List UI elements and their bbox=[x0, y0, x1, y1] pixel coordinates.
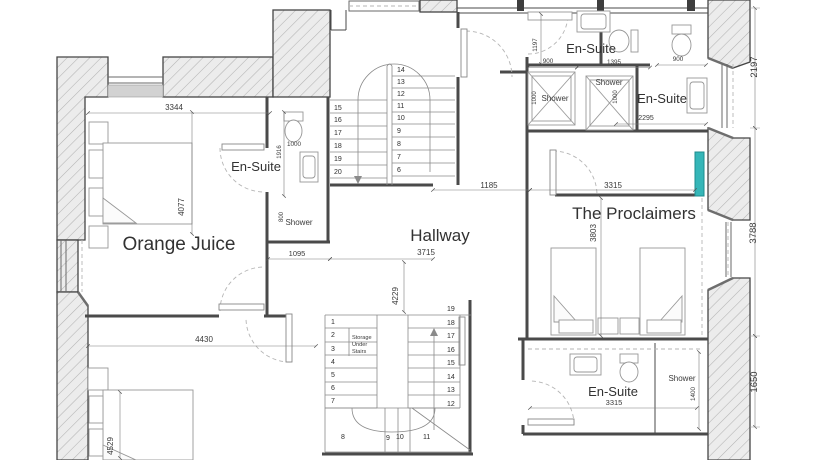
window-sill bbox=[108, 85, 163, 97]
door-leaf bbox=[286, 314, 292, 362]
pillow bbox=[89, 188, 103, 216]
wall-right-low bbox=[708, 278, 750, 460]
room-label-orange-juice: Orange Juice bbox=[122, 234, 235, 255]
bed-double bbox=[103, 390, 193, 460]
dim-2295: 2295 bbox=[638, 115, 654, 122]
dim-3715: 3715 bbox=[417, 248, 435, 257]
stair-number: 17 bbox=[334, 130, 342, 137]
dim-3344: 3344 bbox=[165, 103, 183, 112]
toilet-bowl bbox=[285, 120, 302, 142]
wall-top-center bbox=[163, 57, 273, 97]
stair-number: 7 bbox=[331, 398, 335, 405]
pillow bbox=[89, 396, 103, 423]
dim-900-b: 900 bbox=[673, 56, 684, 63]
stair-number: 16 bbox=[447, 347, 455, 354]
dim-900-a: 900 bbox=[543, 58, 554, 65]
stair-number: 5 bbox=[331, 372, 335, 379]
stairs-upper bbox=[330, 64, 455, 185]
label-storage-line1: Storage bbox=[352, 335, 372, 341]
stair-number: 14 bbox=[447, 374, 455, 381]
dim-1400: 1400 bbox=[690, 387, 697, 402]
bedside-cabinet bbox=[88, 368, 108, 390]
dim-1000-toilet: 1000 bbox=[287, 141, 302, 148]
pillow bbox=[647, 320, 681, 333]
stair-number: 15 bbox=[447, 360, 455, 367]
door-arc-ensuite-bottom bbox=[530, 381, 574, 425]
bedside-cabinet bbox=[89, 122, 108, 144]
toilet-bowl bbox=[620, 362, 638, 382]
wall-left-mid bbox=[57, 240, 78, 292]
pillow bbox=[89, 150, 103, 178]
dim-3803: 3803 bbox=[589, 224, 598, 242]
toilet-cistern bbox=[631, 30, 638, 52]
door-leaf bbox=[528, 419, 574, 425]
label-shower-top-1: Shower bbox=[541, 94, 568, 103]
stair-number: 6 bbox=[331, 385, 335, 392]
stair-arrow bbox=[430, 328, 438, 336]
stair-number: 11 bbox=[423, 434, 430, 441]
dim-4077: 4077 bbox=[177, 198, 186, 216]
stair-number: 19 bbox=[447, 306, 455, 313]
wall-right-mid bbox=[708, 128, 750, 220]
dim-1000-shower1: 1000 bbox=[532, 91, 538, 105]
label-storage-line3: Stairs bbox=[352, 349, 367, 355]
pillow bbox=[559, 320, 593, 333]
stair-number: 13 bbox=[397, 79, 405, 86]
room-label-ensuite-bottom: En-Suite bbox=[588, 384, 638, 399]
room-label-ensuite-top: En-Suite bbox=[566, 41, 616, 56]
stair-number: 12 bbox=[397, 91, 405, 98]
label-storage-line2: Under bbox=[352, 342, 367, 348]
dim-1650: 1650 bbox=[749, 371, 760, 392]
floor-plan: Orange Juice Hallway The Proclaimers En-… bbox=[0, 0, 834, 460]
dim-3315-top: 3315 bbox=[604, 181, 622, 190]
dim-1197: 1197 bbox=[532, 38, 539, 52]
dim-4430: 4430 bbox=[195, 335, 213, 344]
stair-number: 18 bbox=[447, 320, 455, 327]
stair-number: 20 bbox=[334, 169, 342, 176]
dim-2197: 2197 bbox=[749, 56, 760, 77]
stair-number: 6 bbox=[397, 167, 401, 174]
room-label-hallway: Hallway bbox=[410, 226, 470, 245]
bedside-cabinet bbox=[620, 318, 639, 334]
door-leaf bbox=[461, 29, 467, 77]
dim-1095: 1095 bbox=[289, 249, 306, 258]
stair-number: 10 bbox=[396, 434, 404, 441]
stair-number: 14 bbox=[397, 67, 405, 74]
stair-number: 8 bbox=[341, 434, 345, 441]
label-shower-left: Shower bbox=[285, 218, 312, 227]
stair-number: 9 bbox=[397, 128, 401, 135]
stair-direction-line bbox=[358, 64, 430, 176]
stair-number: 7 bbox=[397, 154, 401, 161]
stair-number: 3 bbox=[331, 346, 335, 353]
wall-left-lower bbox=[57, 292, 88, 460]
wall-studs bbox=[517, 0, 695, 11]
dim-1395: 1395 bbox=[607, 59, 622, 66]
stair-number: 12 bbox=[447, 401, 455, 408]
dim-1185: 1185 bbox=[480, 181, 498, 190]
window-accent-bar bbox=[695, 152, 704, 196]
room-label-proclaimers: The Proclaimers bbox=[572, 204, 696, 223]
door-leaf bbox=[550, 150, 556, 195]
stair-number: 4 bbox=[331, 359, 335, 366]
toilet-bowl bbox=[672, 34, 691, 56]
stair-number: 8 bbox=[397, 141, 401, 148]
stair-number: 17 bbox=[447, 333, 455, 340]
dim-3315-bottom: 3315 bbox=[606, 398, 623, 407]
floor-plan-drawing: Orange Juice Hallway The Proclaimers En-… bbox=[0, 0, 834, 460]
bedside-cabinet bbox=[89, 226, 108, 248]
label-shower-top-2: Shower bbox=[595, 78, 622, 87]
stair-number: 11 bbox=[397, 103, 404, 110]
room-label-ensuite-top-right: En-Suite bbox=[637, 91, 687, 106]
stair-number: 15 bbox=[334, 105, 342, 112]
wall-stair-block bbox=[273, 10, 330, 97]
stair-number: 9 bbox=[386, 435, 390, 442]
stair-number: 1 bbox=[331, 319, 335, 326]
dim-1000-shower2: 1000 bbox=[613, 90, 619, 104]
toilet-cistern bbox=[672, 25, 691, 34]
room-label-ensuite-left: En-Suite bbox=[231, 159, 281, 174]
stair-number: 10 bbox=[397, 115, 405, 122]
wall-top-stub bbox=[420, 0, 457, 12]
counter bbox=[528, 12, 572, 20]
door-leaf bbox=[222, 144, 264, 150]
stair-curve bbox=[352, 408, 435, 432]
dim-3788: 3788 bbox=[748, 222, 759, 243]
stair-number: 18 bbox=[334, 143, 342, 150]
pillow bbox=[89, 429, 103, 456]
stair-number: 16 bbox=[334, 117, 342, 124]
door-leaf bbox=[219, 304, 264, 310]
dim-4229: 4229 bbox=[391, 287, 400, 305]
dim-4529: 4529 bbox=[106, 437, 115, 455]
wall-right-top bbox=[708, 0, 750, 68]
dim-1916: 1916 bbox=[277, 145, 283, 159]
stair-number: 19 bbox=[334, 156, 342, 163]
label-shower-bottom: Shower bbox=[668, 374, 695, 383]
door-arc-hall-bedroom2 bbox=[246, 318, 290, 362]
stair-number: 13 bbox=[447, 387, 455, 394]
door-arc-proclaimers bbox=[553, 151, 597, 195]
door-arc-hall-top bbox=[466, 31, 512, 77]
stair-arrow bbox=[354, 176, 362, 184]
stair-number: 2 bbox=[331, 332, 335, 339]
dim-800: 800 bbox=[279, 211, 285, 222]
